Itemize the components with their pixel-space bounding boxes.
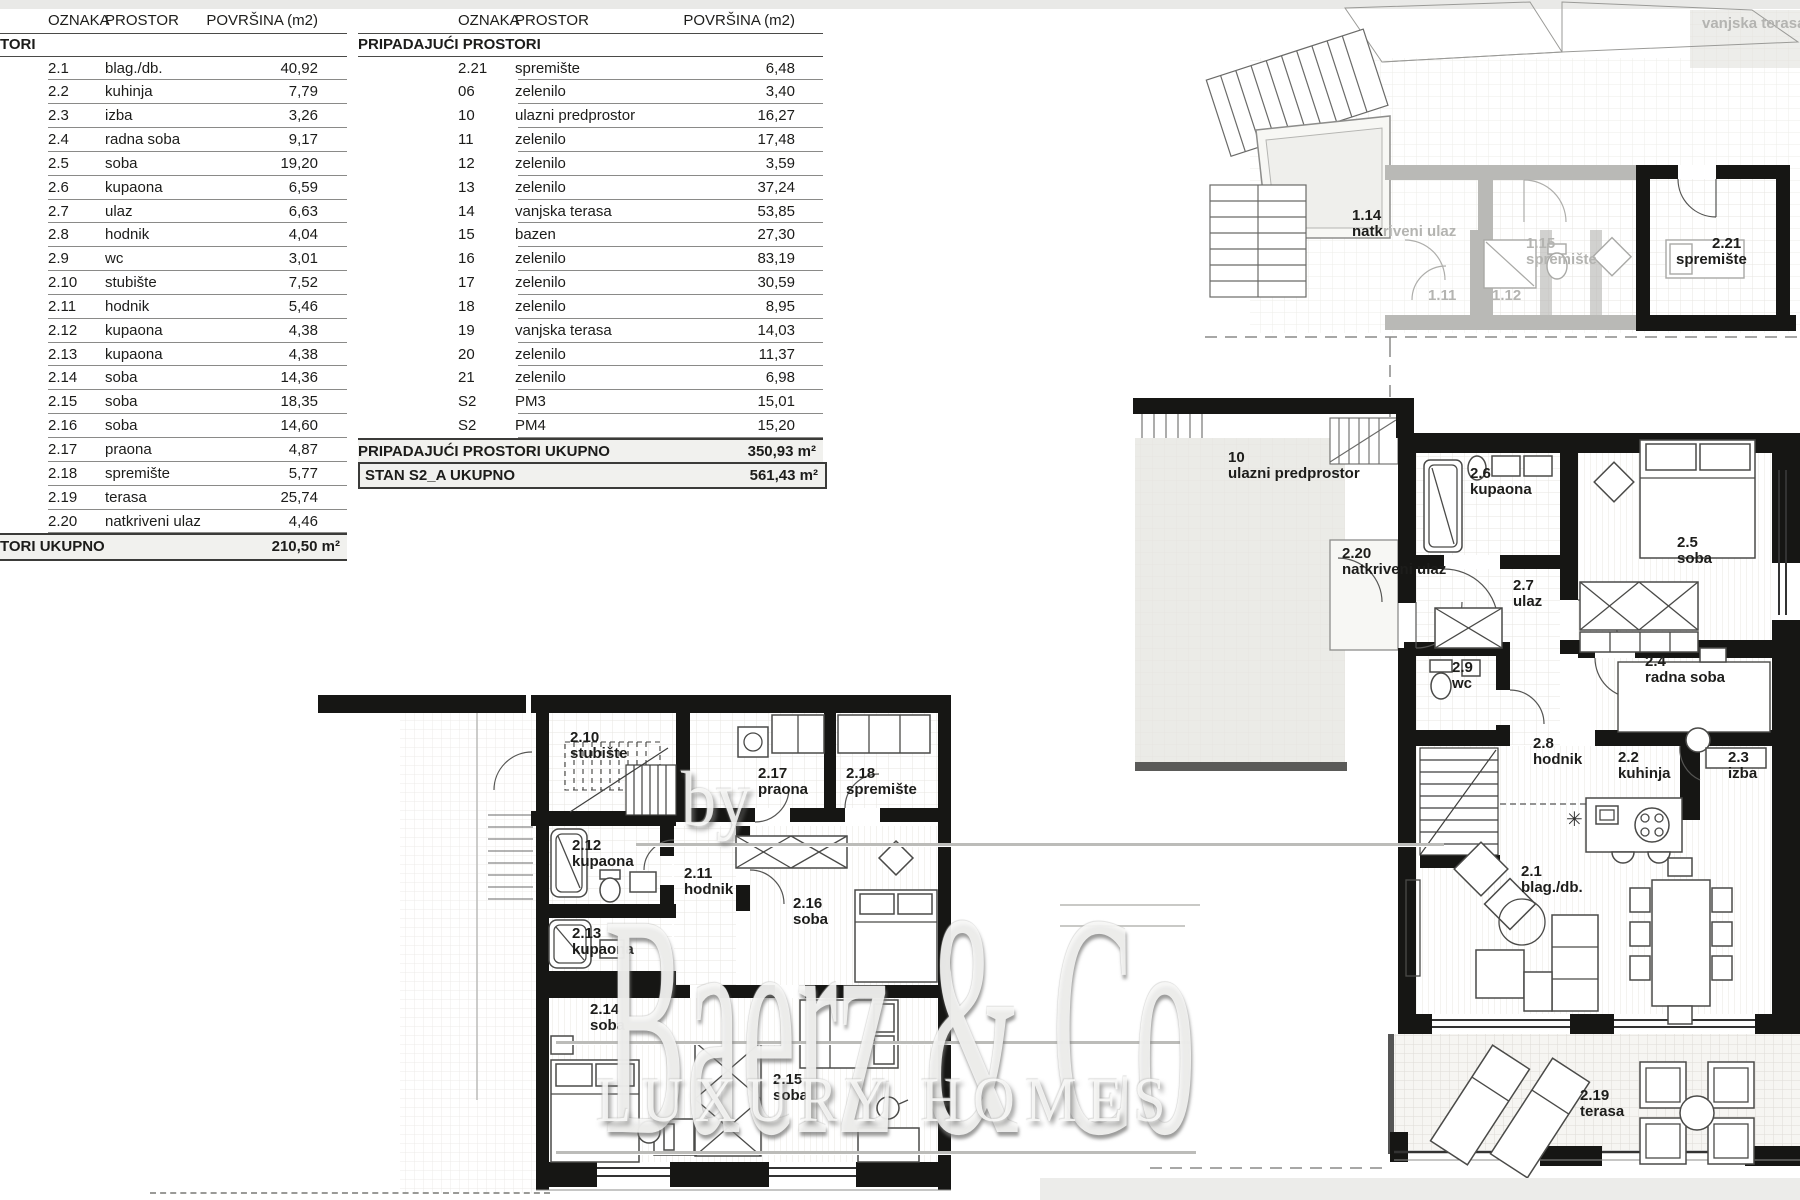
wardrobe-icon [1580, 582, 1698, 652]
table-row: 06zelenilo3,40 [358, 80, 823, 104]
table-row: 2.21spremište6,48 [358, 57, 823, 81]
table-row: 11zelenilo17,48 [358, 128, 823, 152]
table-row: 2.20natkriveni ulaz4,46 [0, 510, 347, 534]
table-row: 2.17praona4,87 [0, 438, 347, 462]
table-grandtotal-row: STAN S2_A UKUPNO 561,43 m² [358, 462, 827, 489]
col-povrsina: POVRŠINA (m2) [683, 9, 795, 33]
closet-icon [1435, 608, 1502, 648]
stairs-icon [1420, 748, 1498, 855]
table-row: 19vanjska terasa14,03 [358, 319, 823, 343]
col-prostor: PROSTOR [105, 9, 179, 33]
table-row: 2.4radna soba9,17 [0, 128, 347, 152]
table-row: 2.1blag./db.40,92 [0, 57, 347, 81]
table-row: 20zelenilo11,37 [358, 343, 823, 367]
svg-text:✳: ✳ [1566, 809, 1583, 831]
section-label: TORI [0, 33, 347, 57]
table-row: 15bazen27,30 [358, 223, 823, 247]
table-row: 2.10stubište7,52 [0, 271, 347, 295]
table-row: 2.5soba19,20 [0, 152, 347, 176]
col-oznaka: OZNAKA [48, 9, 110, 33]
table-row: 2.3izba3,26 [0, 104, 347, 128]
table-row: 14vanjska terasa53,85 [358, 200, 823, 224]
table-subtotal-row: PRIPADAJUĆI PROSTORI UKUPNO 350,93 m² [358, 438, 823, 464]
table-row: 21zelenilo6,98 [358, 366, 823, 390]
table-header: OZNAKA PROSTOR POVRŠINA (m2) [358, 9, 823, 34]
table-row: 2.11hodnik5,46 [0, 295, 347, 319]
stairs-icon [1210, 185, 1306, 297]
table-row: 2.7ulaz6,63 [0, 200, 347, 224]
table-row: 16zelenilo83,19 [358, 247, 823, 271]
table-rows: 2.21spremište6,4806zelenilo3,4010ulazni … [358, 57, 823, 439]
bottom-gray-strip [1040, 1178, 1800, 1200]
table-row: 2.2kuhinja7,79 [0, 80, 347, 104]
table-row: S2PM415,20 [358, 414, 823, 438]
stairs-icon [1330, 418, 1398, 464]
section-label: PRIPADAJUĆI PROSTORI [358, 33, 823, 57]
table-row: 10ulazni predprostor16,27 [358, 104, 823, 128]
table-total-row: TORI UKUPNO 210,50 m² [0, 533, 347, 561]
entry-plaza [1060, 398, 1414, 926]
floor-plan-sheet: OZNAKA PROSTOR POVRŠINA (m2) TORI 2.1bla… [0, 0, 1800, 1200]
table-row: S2PM315,01 [358, 390, 823, 414]
plot-dashed-line [150, 1192, 550, 1194]
table-row: 2.14soba14,36 [0, 366, 347, 390]
table-rows: 2.1blag./db.40,922.2kuhinja7,792.3izba3,… [0, 57, 347, 534]
col-prostor: PROSTOR [515, 9, 589, 33]
table-row: 2.19terasa25,74 [0, 486, 347, 510]
table-row: 2.18spremište5,77 [0, 462, 347, 486]
table-row: 2.8hodnik4,04 [0, 223, 347, 247]
table-prostori: OZNAKA PROSTOR POVRŠINA (m2) TORI 2.1bla… [0, 9, 347, 569]
floor-plan-upper-faded [1050, 0, 1800, 345]
table-pripadajuci: OZNAKA PROSTOR POVRŠINA (m2) PRIPADAJUĆI… [358, 9, 823, 499]
col-oznaka: OZNAKA [458, 9, 520, 33]
table-row: 2.16soba14,60 [0, 414, 347, 438]
floor-plan-bottom [300, 590, 1000, 1200]
table-row: 17zelenilo30,59 [358, 271, 823, 295]
wardrobe-icon [695, 1042, 761, 1156]
shelf-icon [1706, 748, 1766, 768]
floor-plan-main: ✳ [1050, 330, 1800, 1200]
table-row: 2.15soba18,35 [0, 390, 347, 414]
table-row: 2.13kupaona4,38 [0, 343, 347, 367]
table-row: 13zelenilo37,24 [358, 176, 823, 200]
table-row: 18zelenilo8,95 [358, 295, 823, 319]
table-row: 2.12kupaona4,38 [0, 319, 347, 343]
table-row: 2.6kupaona6,59 [0, 176, 347, 200]
table-row: 12zelenilo3,59 [358, 152, 823, 176]
table-row: 2.9wc3,01 [0, 247, 347, 271]
col-povrsina: POVRŠINA (m2) [206, 9, 318, 33]
table-header: OZNAKA PROSTOR POVRŠINA (m2) [0, 9, 347, 34]
